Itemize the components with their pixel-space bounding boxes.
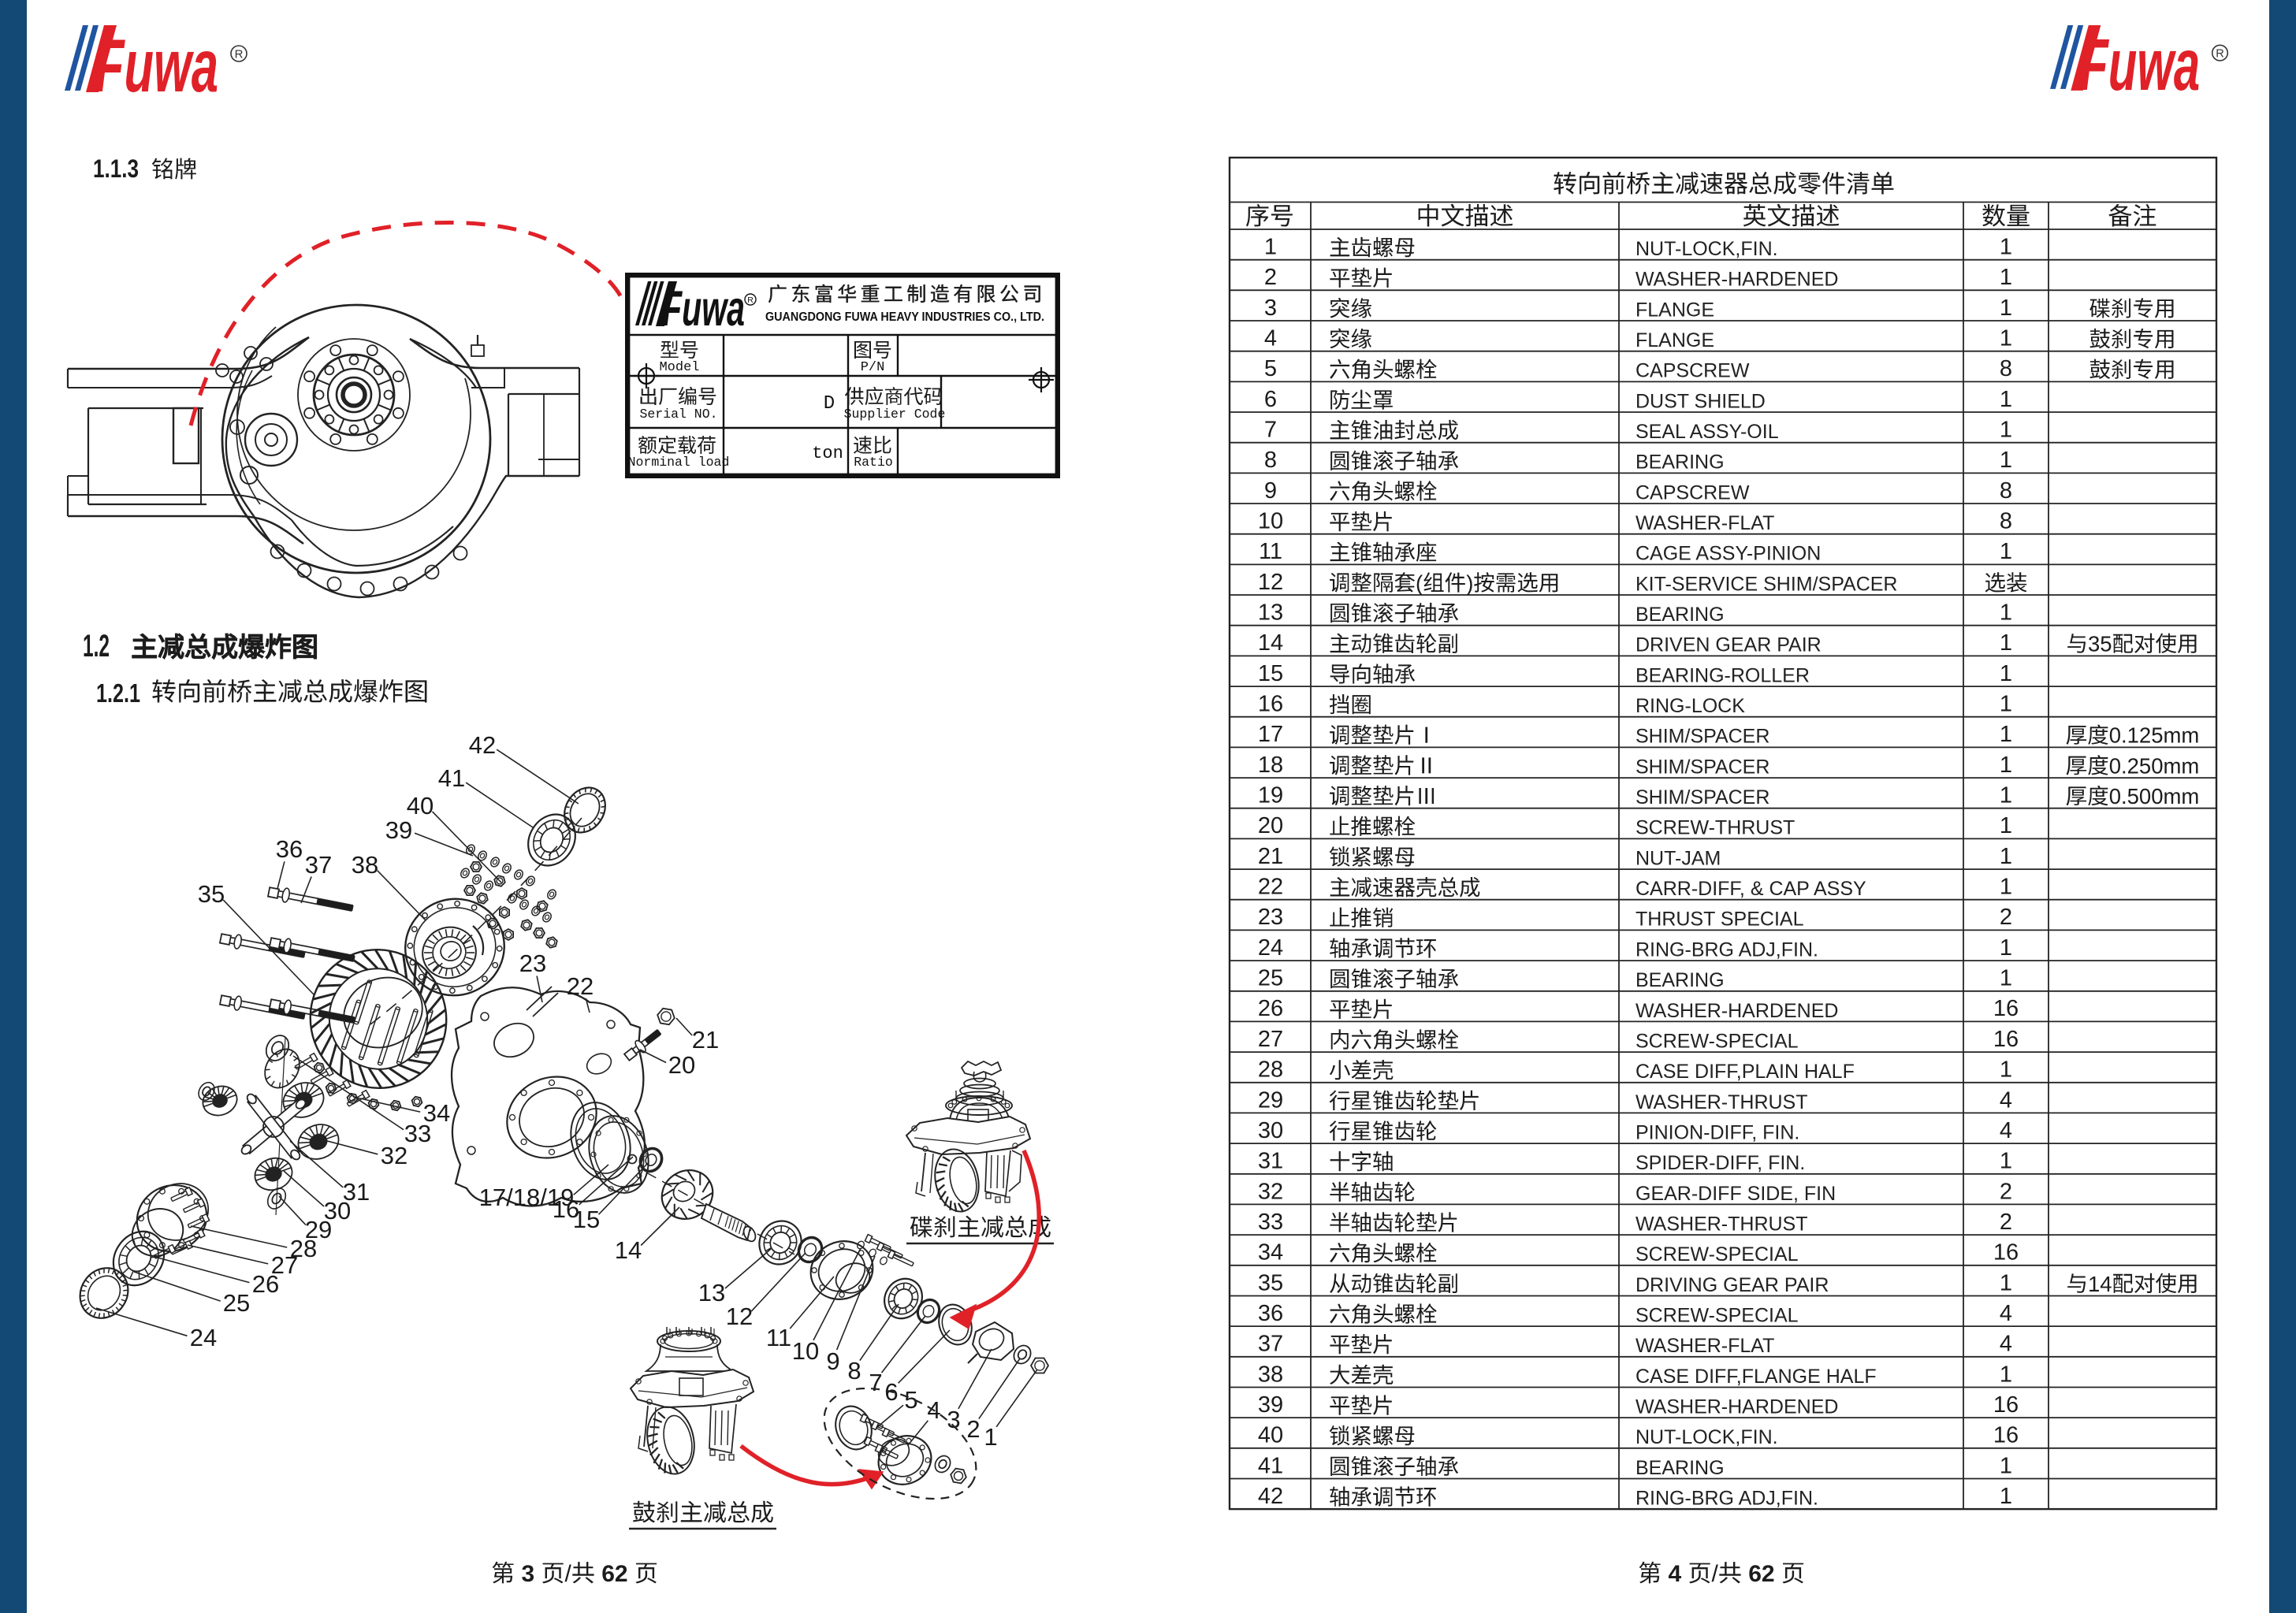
svg-text:36: 36 bbox=[1258, 1301, 1283, 1326]
svg-text:16: 16 bbox=[1993, 1423, 2019, 1448]
svg-text:33: 33 bbox=[404, 1120, 431, 1147]
svg-text:WASHER-FLAT: WASHER-FLAT bbox=[1635, 1335, 1774, 1357]
svg-text:1: 1 bbox=[2000, 813, 2012, 838]
svg-text:WASHER-HARDENED: WASHER-HARDENED bbox=[1635, 1396, 1838, 1418]
svg-text:12: 12 bbox=[1258, 570, 1283, 595]
svg-text:0.250mm: 0.250mm bbox=[2109, 753, 2200, 778]
svg-text:WASHER-HARDENED: WASHER-HARDENED bbox=[1635, 1000, 1838, 1022]
svg-text:DRIVING GEAR PAIR: DRIVING GEAR PAIR bbox=[1635, 1274, 1829, 1296]
svg-text:3: 3 bbox=[1264, 295, 1277, 321]
svg-text:SCREW-SPECIAL: SCREW-SPECIAL bbox=[1635, 1243, 1799, 1265]
svg-text:BEARING: BEARING bbox=[1635, 1457, 1725, 1479]
svg-text:Supplier Code: Supplier Code bbox=[844, 407, 946, 422]
svg-text:/: / bbox=[565, 1561, 572, 1587]
svg-text:35: 35 bbox=[2088, 632, 2112, 656]
svg-text:38: 38 bbox=[352, 851, 378, 879]
svg-text:SCREW-THRUST: SCREW-THRUST bbox=[1635, 817, 1795, 839]
svg-text:PINION-DIFF, FIN.: PINION-DIFF, FIN. bbox=[1635, 1121, 1799, 1143]
svg-text:22: 22 bbox=[567, 972, 594, 1000]
svg-text:WASHER-THRUST: WASHER-THRUST bbox=[1635, 1091, 1808, 1113]
svg-text:KIT-SERVICE SHIM/SPACER: KIT-SERVICE SHIM/SPACER bbox=[1635, 573, 1897, 595]
svg-text:1.2: 1.2 bbox=[83, 629, 110, 663]
svg-text:1.1.3: 1.1.3 bbox=[93, 154, 139, 183]
svg-text:14: 14 bbox=[1258, 630, 1283, 656]
svg-text:BEARING: BEARING bbox=[1635, 969, 1725, 991]
svg-text:SHIM/SPACER: SHIM/SPACER bbox=[1635, 756, 1769, 778]
svg-text:10: 10 bbox=[1258, 509, 1283, 534]
svg-text:CAGE ASSY-PINION: CAGE ASSY-PINION bbox=[1635, 543, 1821, 565]
svg-text:62: 62 bbox=[601, 1561, 627, 1587]
svg-text:FLANGE: FLANGE bbox=[1635, 329, 1714, 351]
svg-text:Ratio: Ratio bbox=[854, 455, 893, 470]
svg-text:62: 62 bbox=[1748, 1561, 1774, 1587]
svg-text:Fuwa: Fuwa bbox=[662, 281, 745, 336]
svg-text:42: 42 bbox=[1258, 1484, 1283, 1509]
svg-text:SCREW-SPECIAL: SCREW-SPECIAL bbox=[1635, 1305, 1799, 1327]
svg-text:1: 1 bbox=[2000, 1362, 2012, 1387]
svg-text:CAPSCREW: CAPSCREW bbox=[1635, 481, 1750, 504]
svg-text:Model: Model bbox=[659, 360, 699, 375]
svg-text:RING-BRG ADJ,FIN.: RING-BRG ADJ,FIN. bbox=[1635, 938, 1818, 961]
svg-text:41: 41 bbox=[1258, 1453, 1283, 1478]
svg-text:NUT-LOCK,FIN.: NUT-LOCK,FIN. bbox=[1635, 1426, 1778, 1448]
svg-text:GUANGDONG FUWA HEAVY INDUSTRIE: GUANGDONG FUWA HEAVY INDUSTRIES CO., LTD… bbox=[765, 310, 1044, 324]
svg-text:R: R bbox=[747, 295, 754, 305]
svg-text:3: 3 bbox=[947, 1406, 960, 1433]
svg-text:1: 1 bbox=[2000, 1484, 2012, 1509]
svg-text:SHIM/SPACER: SHIM/SPACER bbox=[1635, 726, 1769, 748]
svg-text:4: 4 bbox=[2000, 1087, 2012, 1113]
svg-text:(: ( bbox=[1416, 570, 1423, 595]
svg-text:1: 1 bbox=[2000, 600, 2012, 626]
svg-text:CASE DIFF,FLANGE HALF: CASE DIFF,FLANGE HALF bbox=[1635, 1366, 1877, 1388]
svg-text:FLANGE: FLANGE bbox=[1635, 299, 1714, 321]
svg-text:27: 27 bbox=[1258, 1027, 1283, 1052]
svg-text:15: 15 bbox=[1258, 661, 1283, 686]
svg-text:1: 1 bbox=[2000, 418, 2012, 443]
svg-text:/: / bbox=[1712, 1561, 1719, 1587]
svg-text:42: 42 bbox=[469, 731, 496, 759]
svg-text:5: 5 bbox=[1264, 356, 1277, 381]
svg-text:1: 1 bbox=[2000, 1270, 2012, 1295]
svg-text:8: 8 bbox=[2000, 478, 2012, 504]
svg-text:7: 7 bbox=[1264, 418, 1277, 443]
svg-text:BEARING: BEARING bbox=[1635, 452, 1725, 474]
svg-text:1: 1 bbox=[2000, 630, 2012, 656]
svg-text:1: 1 bbox=[1264, 235, 1277, 260]
svg-text:17: 17 bbox=[1258, 722, 1283, 747]
svg-text:1: 1 bbox=[2000, 1453, 2012, 1478]
svg-text:SPIDER-DIFF, FIN.: SPIDER-DIFF, FIN. bbox=[1635, 1152, 1805, 1174]
svg-text:37: 37 bbox=[305, 851, 332, 879]
svg-text:1: 1 bbox=[2000, 265, 2012, 290]
svg-text:4: 4 bbox=[1264, 326, 1277, 351]
svg-text:33: 33 bbox=[1258, 1210, 1283, 1235]
svg-text:Fuwa: Fuwa bbox=[2079, 24, 2200, 106]
svg-text:1: 1 bbox=[2000, 692, 2012, 717]
svg-text:9: 9 bbox=[826, 1347, 839, 1375]
svg-text:13: 13 bbox=[698, 1279, 725, 1306]
svg-text:NUT-JAM: NUT-JAM bbox=[1635, 847, 1721, 869]
svg-text:2: 2 bbox=[1264, 265, 1277, 290]
svg-text:D: D bbox=[824, 393, 835, 414]
svg-text:1: 1 bbox=[2000, 783, 2012, 808]
svg-text:1: 1 bbox=[984, 1423, 997, 1451]
svg-text:4: 4 bbox=[1669, 1561, 1682, 1587]
svg-text:NUT-LOCK,FIN.: NUT-LOCK,FIN. bbox=[1635, 238, 1778, 260]
svg-text:0.500mm: 0.500mm bbox=[2109, 784, 2200, 808]
svg-text:35: 35 bbox=[1258, 1270, 1283, 1295]
svg-text:SCREW-SPECIAL: SCREW-SPECIAL bbox=[1635, 1030, 1799, 1052]
svg-text:30: 30 bbox=[1258, 1118, 1283, 1143]
svg-text:2: 2 bbox=[2000, 1179, 2012, 1204]
svg-text:1: 1 bbox=[2000, 875, 2012, 900]
svg-text:SHIM/SPACER: SHIM/SPACER bbox=[1635, 786, 1769, 808]
svg-text:39: 39 bbox=[1258, 1392, 1283, 1418]
svg-text:32: 32 bbox=[381, 1142, 407, 1169]
svg-text:18: 18 bbox=[1258, 753, 1283, 778]
svg-text:16: 16 bbox=[1993, 1392, 2019, 1418]
svg-text:34: 34 bbox=[1258, 1240, 1283, 1265]
svg-text:4: 4 bbox=[2000, 1118, 2012, 1143]
svg-text:2: 2 bbox=[2000, 905, 2012, 930]
svg-text:1: 1 bbox=[2000, 844, 2012, 869]
svg-text:25: 25 bbox=[1258, 966, 1283, 991]
svg-text:6: 6 bbox=[1264, 387, 1277, 412]
svg-text:ton: ton bbox=[812, 444, 843, 463]
svg-text:WASHER-HARDENED: WASHER-HARDENED bbox=[1635, 269, 1838, 291]
svg-text:1: 1 bbox=[2000, 966, 2012, 991]
svg-text:WASHER-THRUST: WASHER-THRUST bbox=[1635, 1213, 1808, 1235]
svg-text:11: 11 bbox=[1259, 539, 1282, 564]
svg-text:28: 28 bbox=[1258, 1057, 1283, 1083]
svg-text:23: 23 bbox=[1258, 905, 1283, 930]
svg-text:Norminal load: Norminal load bbox=[628, 455, 730, 470]
svg-text:1: 1 bbox=[2000, 722, 2012, 747]
svg-text:11: 11 bbox=[766, 1324, 791, 1351]
svg-text:RING-LOCK: RING-LOCK bbox=[1635, 695, 1745, 717]
svg-text:Fuwa: Fuwa bbox=[95, 24, 218, 108]
svg-text:13: 13 bbox=[1258, 600, 1283, 626]
svg-text:1: 1 bbox=[2000, 753, 2012, 778]
svg-text:P/N: P/N bbox=[861, 360, 885, 375]
svg-text:1: 1 bbox=[2000, 235, 2012, 260]
svg-text:31: 31 bbox=[1258, 1149, 1283, 1174]
svg-text:BEARING-ROLLER: BEARING-ROLLER bbox=[1635, 664, 1810, 686]
svg-text:8: 8 bbox=[847, 1357, 861, 1384]
svg-text:4: 4 bbox=[2000, 1301, 2012, 1326]
svg-text:1: 1 bbox=[2000, 1057, 2012, 1083]
svg-text:1: 1 bbox=[2000, 326, 2012, 351]
svg-text:38: 38 bbox=[1258, 1362, 1283, 1387]
svg-text:RING-BRG ADJ,FIN.: RING-BRG ADJ,FIN. bbox=[1635, 1488, 1818, 1510]
svg-text:4: 4 bbox=[2000, 1332, 2012, 1357]
svg-text:22: 22 bbox=[1258, 875, 1283, 900]
svg-text:R: R bbox=[2216, 48, 2224, 61]
svg-text:26: 26 bbox=[252, 1270, 279, 1298]
svg-text:8: 8 bbox=[1264, 448, 1277, 473]
svg-text:24: 24 bbox=[190, 1324, 217, 1351]
svg-text:40: 40 bbox=[407, 792, 434, 820]
svg-text:CASE DIFF,PLAIN HALF: CASE DIFF,PLAIN HALF bbox=[1635, 1061, 1855, 1083]
svg-text:20: 20 bbox=[1258, 813, 1283, 838]
svg-text:CAPSCREW: CAPSCREW bbox=[1635, 360, 1750, 382]
svg-text:32: 32 bbox=[1258, 1179, 1283, 1204]
svg-text:SEAL ASSY-OIL: SEAL ASSY-OIL bbox=[1635, 421, 1779, 443]
svg-text:14: 14 bbox=[2088, 1272, 2112, 1296]
svg-text:15: 15 bbox=[573, 1206, 600, 1233]
svg-text:16: 16 bbox=[1993, 996, 2019, 1021]
svg-text:BEARING: BEARING bbox=[1635, 604, 1725, 626]
svg-text:37: 37 bbox=[1258, 1332, 1283, 1357]
svg-text:DUST SHIELD: DUST SHIELD bbox=[1635, 390, 1766, 412]
svg-text:24: 24 bbox=[1258, 935, 1283, 961]
svg-text:2: 2 bbox=[966, 1415, 980, 1443]
svg-text:26: 26 bbox=[1258, 996, 1283, 1021]
svg-text:): ) bbox=[1466, 570, 1473, 595]
svg-text:9: 9 bbox=[1264, 478, 1277, 504]
svg-text:DRIVEN GEAR PAIR: DRIVEN GEAR PAIR bbox=[1635, 634, 1822, 656]
svg-text:12: 12 bbox=[726, 1303, 753, 1330]
svg-text:8: 8 bbox=[2000, 509, 2012, 534]
svg-text:21: 21 bbox=[1258, 844, 1283, 869]
svg-text:THRUST SPECIAL: THRUST SPECIAL bbox=[1635, 909, 1804, 931]
svg-text:2: 2 bbox=[2000, 1210, 2012, 1235]
svg-text:1.2.1: 1.2.1 bbox=[96, 678, 140, 708]
svg-text:14: 14 bbox=[615, 1236, 642, 1264]
svg-text:0.125mm: 0.125mm bbox=[2109, 723, 2200, 748]
svg-text:CARR-DIFF, & CAP ASSY: CARR-DIFF, & CAP ASSY bbox=[1635, 878, 1866, 900]
svg-text:3: 3 bbox=[522, 1561, 535, 1587]
svg-text:29: 29 bbox=[1258, 1087, 1283, 1113]
svg-text:1: 1 bbox=[2000, 661, 2012, 686]
svg-text:19: 19 bbox=[1258, 783, 1283, 808]
svg-text:1: 1 bbox=[2000, 387, 2012, 412]
svg-text:7: 7 bbox=[869, 1369, 882, 1396]
svg-text:41: 41 bbox=[438, 764, 465, 792]
svg-text:35: 35 bbox=[198, 880, 225, 908]
svg-text:10: 10 bbox=[792, 1337, 819, 1365]
svg-text:16: 16 bbox=[1993, 1027, 2019, 1052]
svg-text:39: 39 bbox=[385, 816, 412, 844]
svg-text:40: 40 bbox=[1258, 1423, 1283, 1448]
svg-text:25: 25 bbox=[223, 1289, 250, 1317]
svg-text:20: 20 bbox=[668, 1051, 695, 1079]
svg-text:23: 23 bbox=[519, 950, 546, 977]
svg-text:1: 1 bbox=[2000, 935, 2012, 961]
svg-text:Serial NO.: Serial NO. bbox=[639, 407, 717, 422]
svg-text:16: 16 bbox=[1258, 692, 1283, 717]
svg-text:1: 1 bbox=[2000, 539, 2012, 564]
svg-text:R: R bbox=[235, 48, 244, 61]
svg-text:8: 8 bbox=[2000, 356, 2012, 381]
svg-text:1: 1 bbox=[2000, 1149, 2012, 1174]
svg-text:36: 36 bbox=[276, 835, 303, 863]
svg-text:GEAR-DIFF SIDE, FIN: GEAR-DIFF SIDE, FIN bbox=[1635, 1183, 1836, 1205]
svg-text:1: 1 bbox=[2000, 448, 2012, 473]
svg-text:WASHER-FLAT: WASHER-FLAT bbox=[1635, 512, 1774, 534]
svg-text:1: 1 bbox=[2000, 295, 2012, 321]
svg-text:21: 21 bbox=[692, 1026, 719, 1054]
svg-text:16: 16 bbox=[1993, 1240, 2019, 1265]
